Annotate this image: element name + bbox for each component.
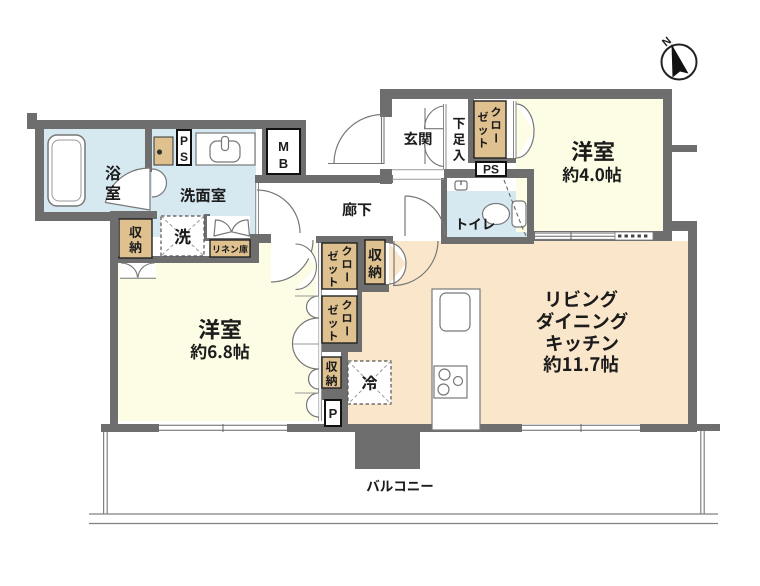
svg-text:M: M (278, 139, 289, 154)
svg-text:P: P (180, 134, 188, 148)
svg-text:B: B (279, 156, 288, 171)
svg-text:S: S (180, 150, 188, 164)
svg-text:PS: PS (483, 163, 499, 177)
svg-text:P: P (329, 406, 338, 421)
